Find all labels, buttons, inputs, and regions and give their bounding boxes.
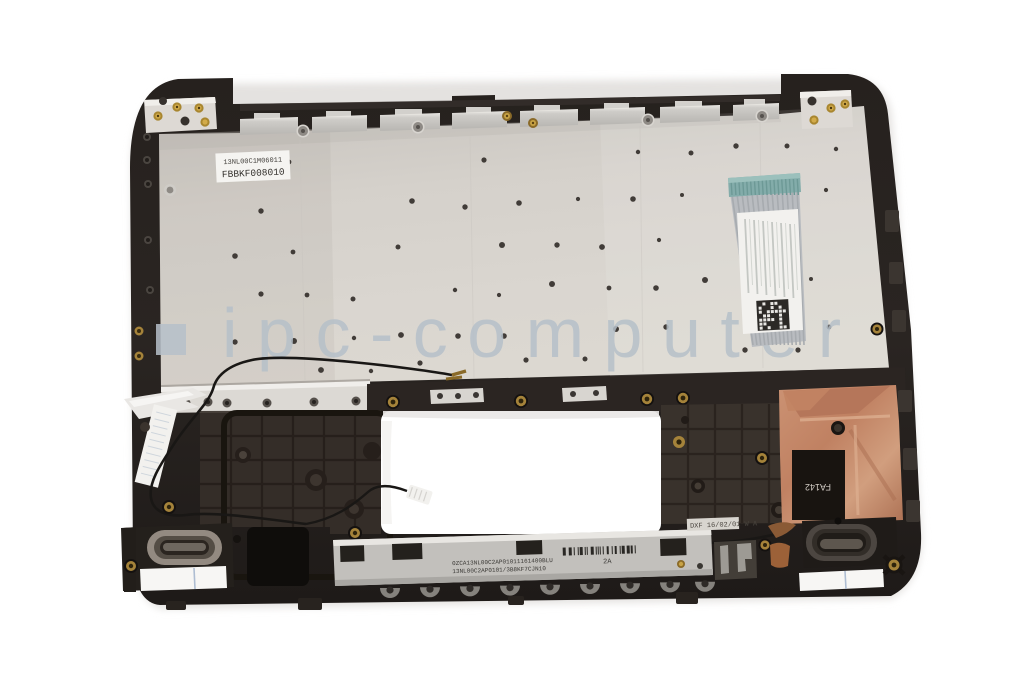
- svg-text:FA142: FA142: [805, 482, 831, 492]
- svg-text:2A: 2A: [603, 558, 612, 566]
